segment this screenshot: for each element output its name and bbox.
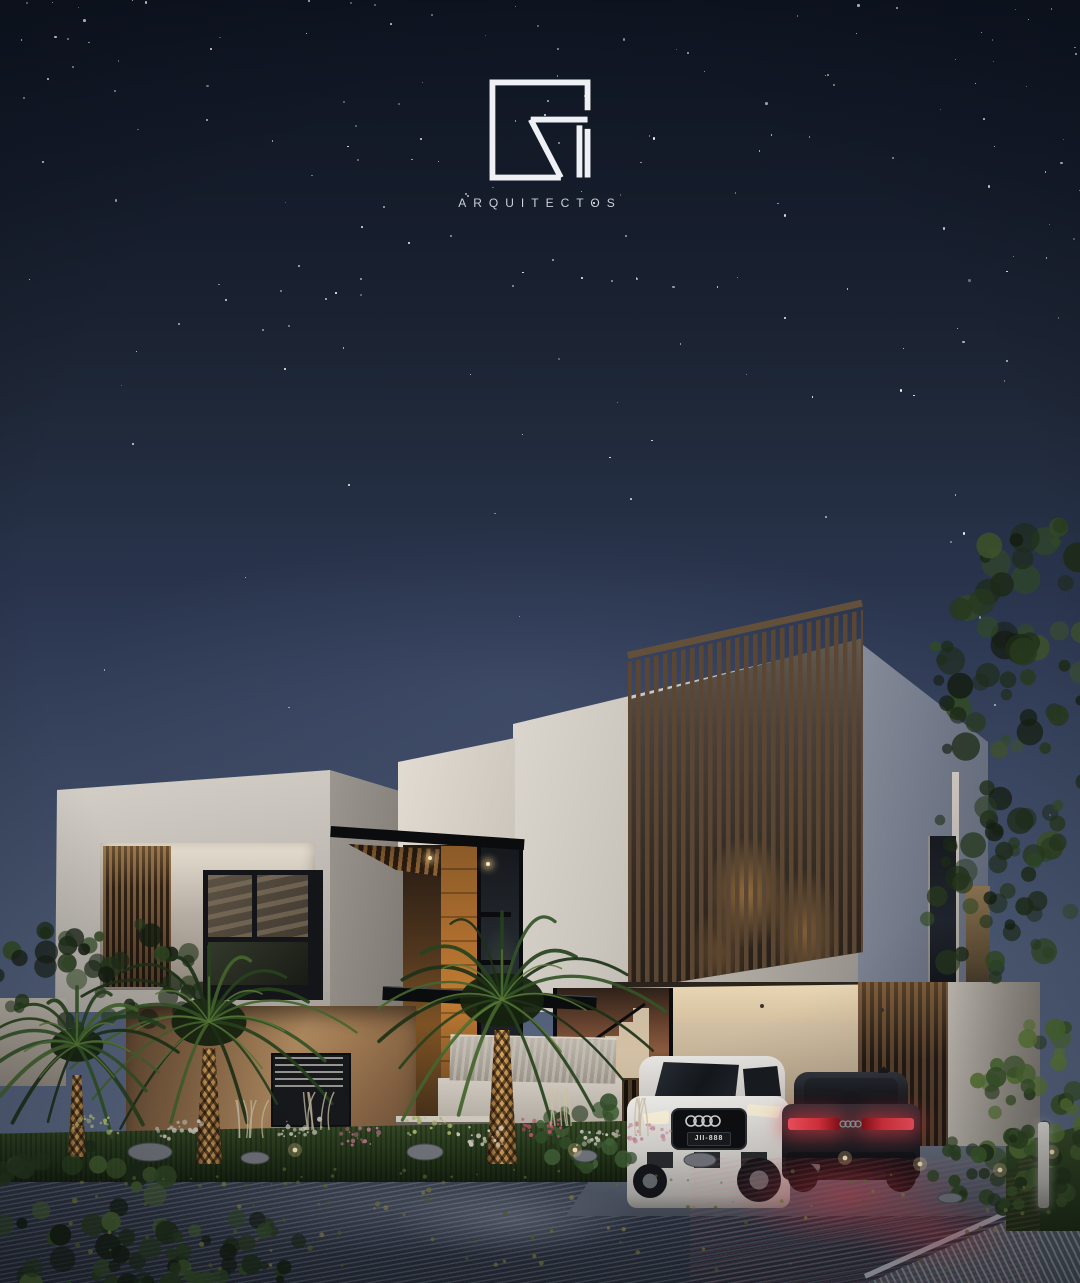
vegetation-foreground [0, 0, 1080, 1283]
architectural-night-rendering: ARQUITECTOS [0, 0, 1080, 1283]
bollard-light [1038, 1122, 1049, 1208]
